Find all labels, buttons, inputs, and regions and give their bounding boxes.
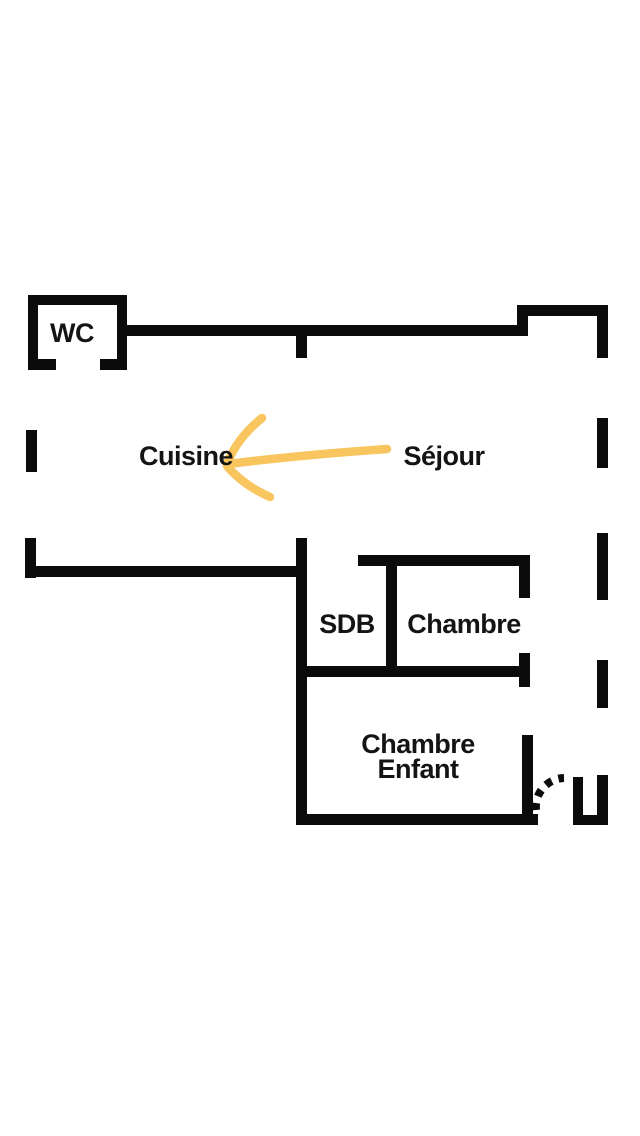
floor-plan-page: WC Cuisine Séjour SDB Chambre Chambre En… — [0, 0, 640, 1136]
arrow-shaft — [228, 449, 387, 464]
wc-wall-bottom-left — [28, 359, 56, 370]
left-wall-segment-1 — [26, 430, 37, 472]
floor-plan-drawing: WC Cuisine Séjour SDB Chambre Chambre En… — [0, 0, 640, 1136]
right-wall-segment-4 — [597, 660, 608, 708]
sdb-label: SDB — [319, 609, 375, 639]
walls-group — [25, 295, 608, 825]
cuisine-label: Cuisine — [139, 441, 234, 471]
entry-return-wall-bottom — [573, 815, 608, 825]
chambre-label: Chambre — [407, 609, 521, 639]
sdb-chambre-bottom-wall — [296, 666, 528, 677]
sdb-chambre-top-wall — [358, 555, 528, 566]
central-vertical-wall — [296, 538, 307, 825]
sejour-label: Séjour — [403, 441, 485, 471]
right-wall-segment-1 — [597, 305, 608, 358]
wc-wall-bottom-right — [100, 359, 127, 370]
wc-label: WC — [50, 318, 94, 348]
entry-door-swing-arc — [536, 778, 564, 810]
wc-wall-right — [117, 295, 127, 370]
kitchen-door-stub-wall — [296, 336, 307, 358]
arrow-head-lower-stroke — [227, 466, 270, 497]
chambre-enfant-label-line2: Enfant — [378, 754, 460, 784]
right-wall-segment-2 — [597, 418, 608, 468]
top-outer-wall — [127, 325, 517, 336]
chambre-enfant-bottom-wall — [296, 814, 538, 825]
sejour-to-cuisine-arrow — [227, 418, 387, 497]
room-labels-group: WC Cuisine Séjour SDB Chambre Chambre En… — [50, 318, 521, 784]
wc-wall-top — [28, 295, 127, 305]
chambre-enfant-right-wall — [522, 735, 533, 825]
chambre-right-wall-upper — [519, 555, 530, 598]
sdb-chambre-separator-wall — [386, 555, 397, 677]
top-outer-wall-upper — [517, 305, 608, 316]
middle-wall — [25, 566, 307, 577]
right-wall-segment-3 — [597, 533, 608, 600]
wc-wall-left — [28, 295, 38, 370]
